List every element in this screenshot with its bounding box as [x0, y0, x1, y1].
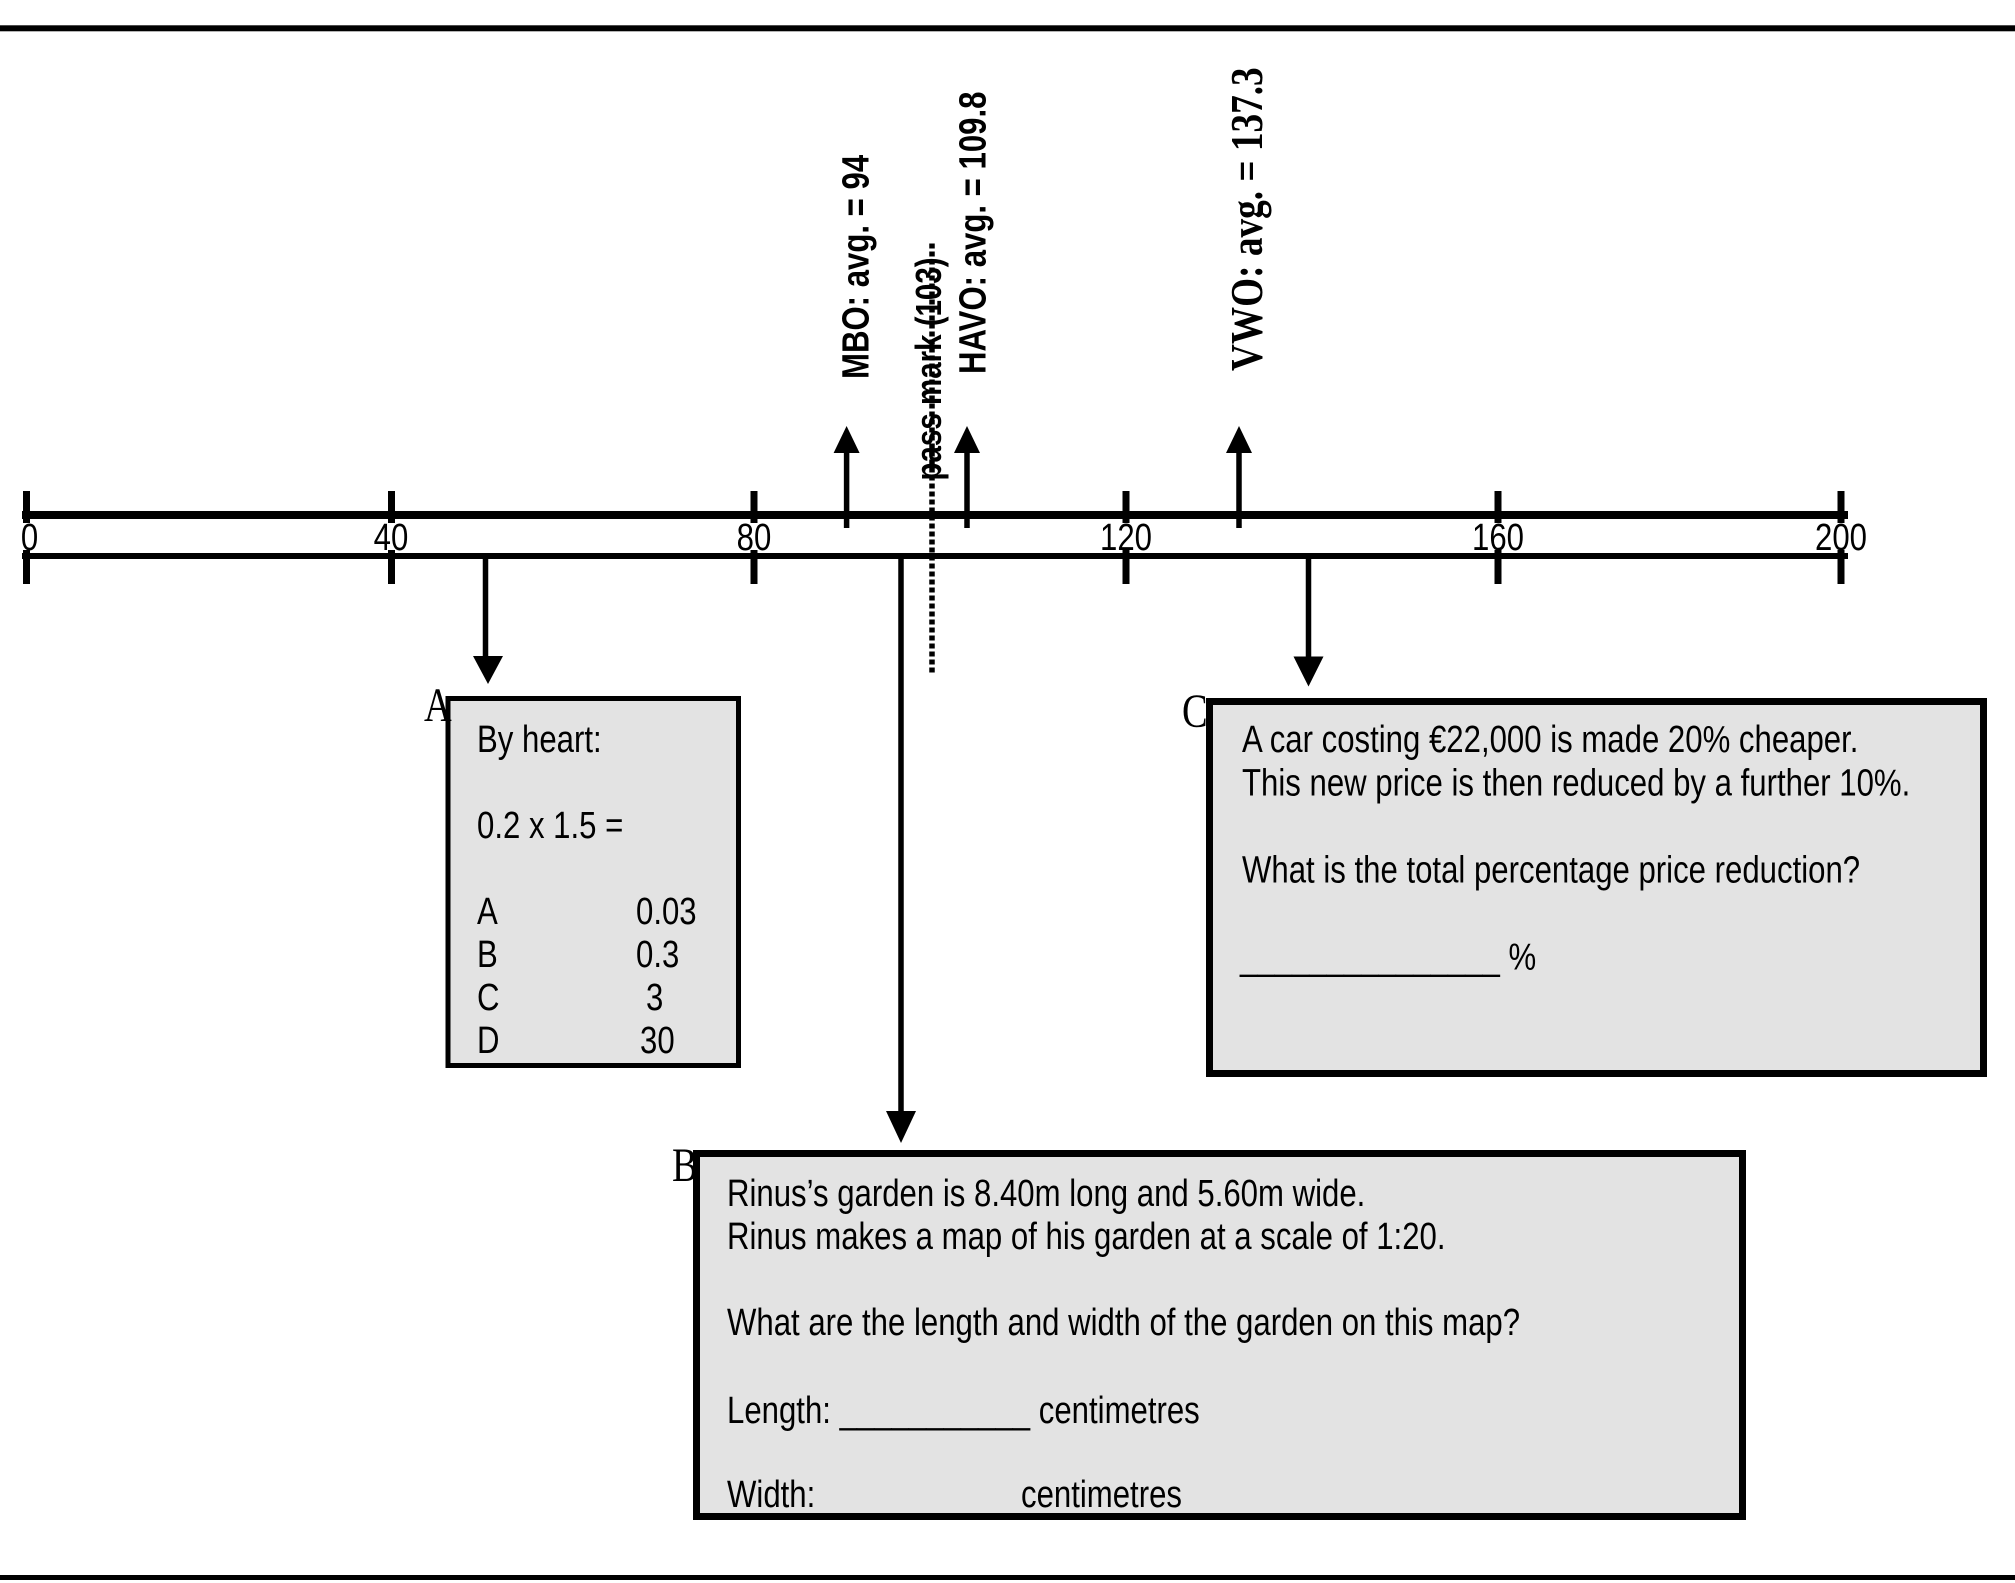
- svg-text:0.2 x 1.5 =: 0.2 x 1.5 =: [477, 805, 623, 847]
- svg-text:3: 3: [646, 977, 663, 1019]
- svg-text:Rinus’s garden is 8.40m long a: Rinus’s garden is 8.40m long and 5.60m w…: [727, 1173, 1365, 1215]
- svg-text:A car costing €22,000 is made: A car costing €22,000 is made 20% cheape…: [1242, 719, 1858, 761]
- svg-text:D: D: [477, 1020, 500, 1062]
- svg-text:MBO: avg. = 94: MBO: avg. = 94: [836, 154, 878, 379]
- svg-text:C: C: [477, 977, 500, 1019]
- svg-text:40: 40: [374, 517, 409, 559]
- svg-text:By heart:: By heart:: [477, 719, 602, 761]
- svg-text:centimetres: centimetres: [1021, 1474, 1182, 1516]
- svg-text:What are the length and width: What are the length and width of the gar…: [727, 1302, 1520, 1344]
- svg-text:pass mark (103): pass mark (103): [908, 257, 948, 480]
- svg-text:C: C: [1182, 685, 1208, 738]
- svg-text:Width:: Width:: [727, 1474, 815, 1516]
- svg-text:B: B: [672, 1139, 698, 1192]
- svg-text:120: 120: [1100, 517, 1152, 559]
- svg-text:30: 30: [640, 1020, 675, 1062]
- svg-text:Length: ___________ centimetre: Length: ___________ centimetres: [727, 1390, 1200, 1432]
- svg-text:What is the total percentage p: What is the total percentage price reduc…: [1242, 850, 1860, 892]
- svg-text:Rinus makes a map of his garde: Rinus makes a map of his garden at a sca…: [727, 1216, 1446, 1258]
- svg-text:160: 160: [1472, 517, 1524, 559]
- svg-text:VWO: avg. = 137.3: VWO: avg. = 137.3: [1222, 67, 1273, 371]
- svg-text:0: 0: [21, 517, 38, 559]
- svg-text:200: 200: [1815, 517, 1867, 559]
- svg-text:This new price is then reduced: This new price is then reduced by a furt…: [1242, 763, 1910, 805]
- svg-text:_______________ %: _______________ %: [1239, 937, 1536, 979]
- svg-text:0.03: 0.03: [636, 891, 697, 933]
- svg-text:80: 80: [737, 517, 772, 559]
- svg-text:B: B: [477, 934, 498, 976]
- svg-text:HAVO: avg. = 109.8: HAVO: avg. = 109.8: [953, 92, 995, 374]
- svg-text:0.3: 0.3: [636, 934, 679, 976]
- svg-text:A: A: [477, 891, 499, 933]
- svg-text:A: A: [424, 679, 452, 732]
